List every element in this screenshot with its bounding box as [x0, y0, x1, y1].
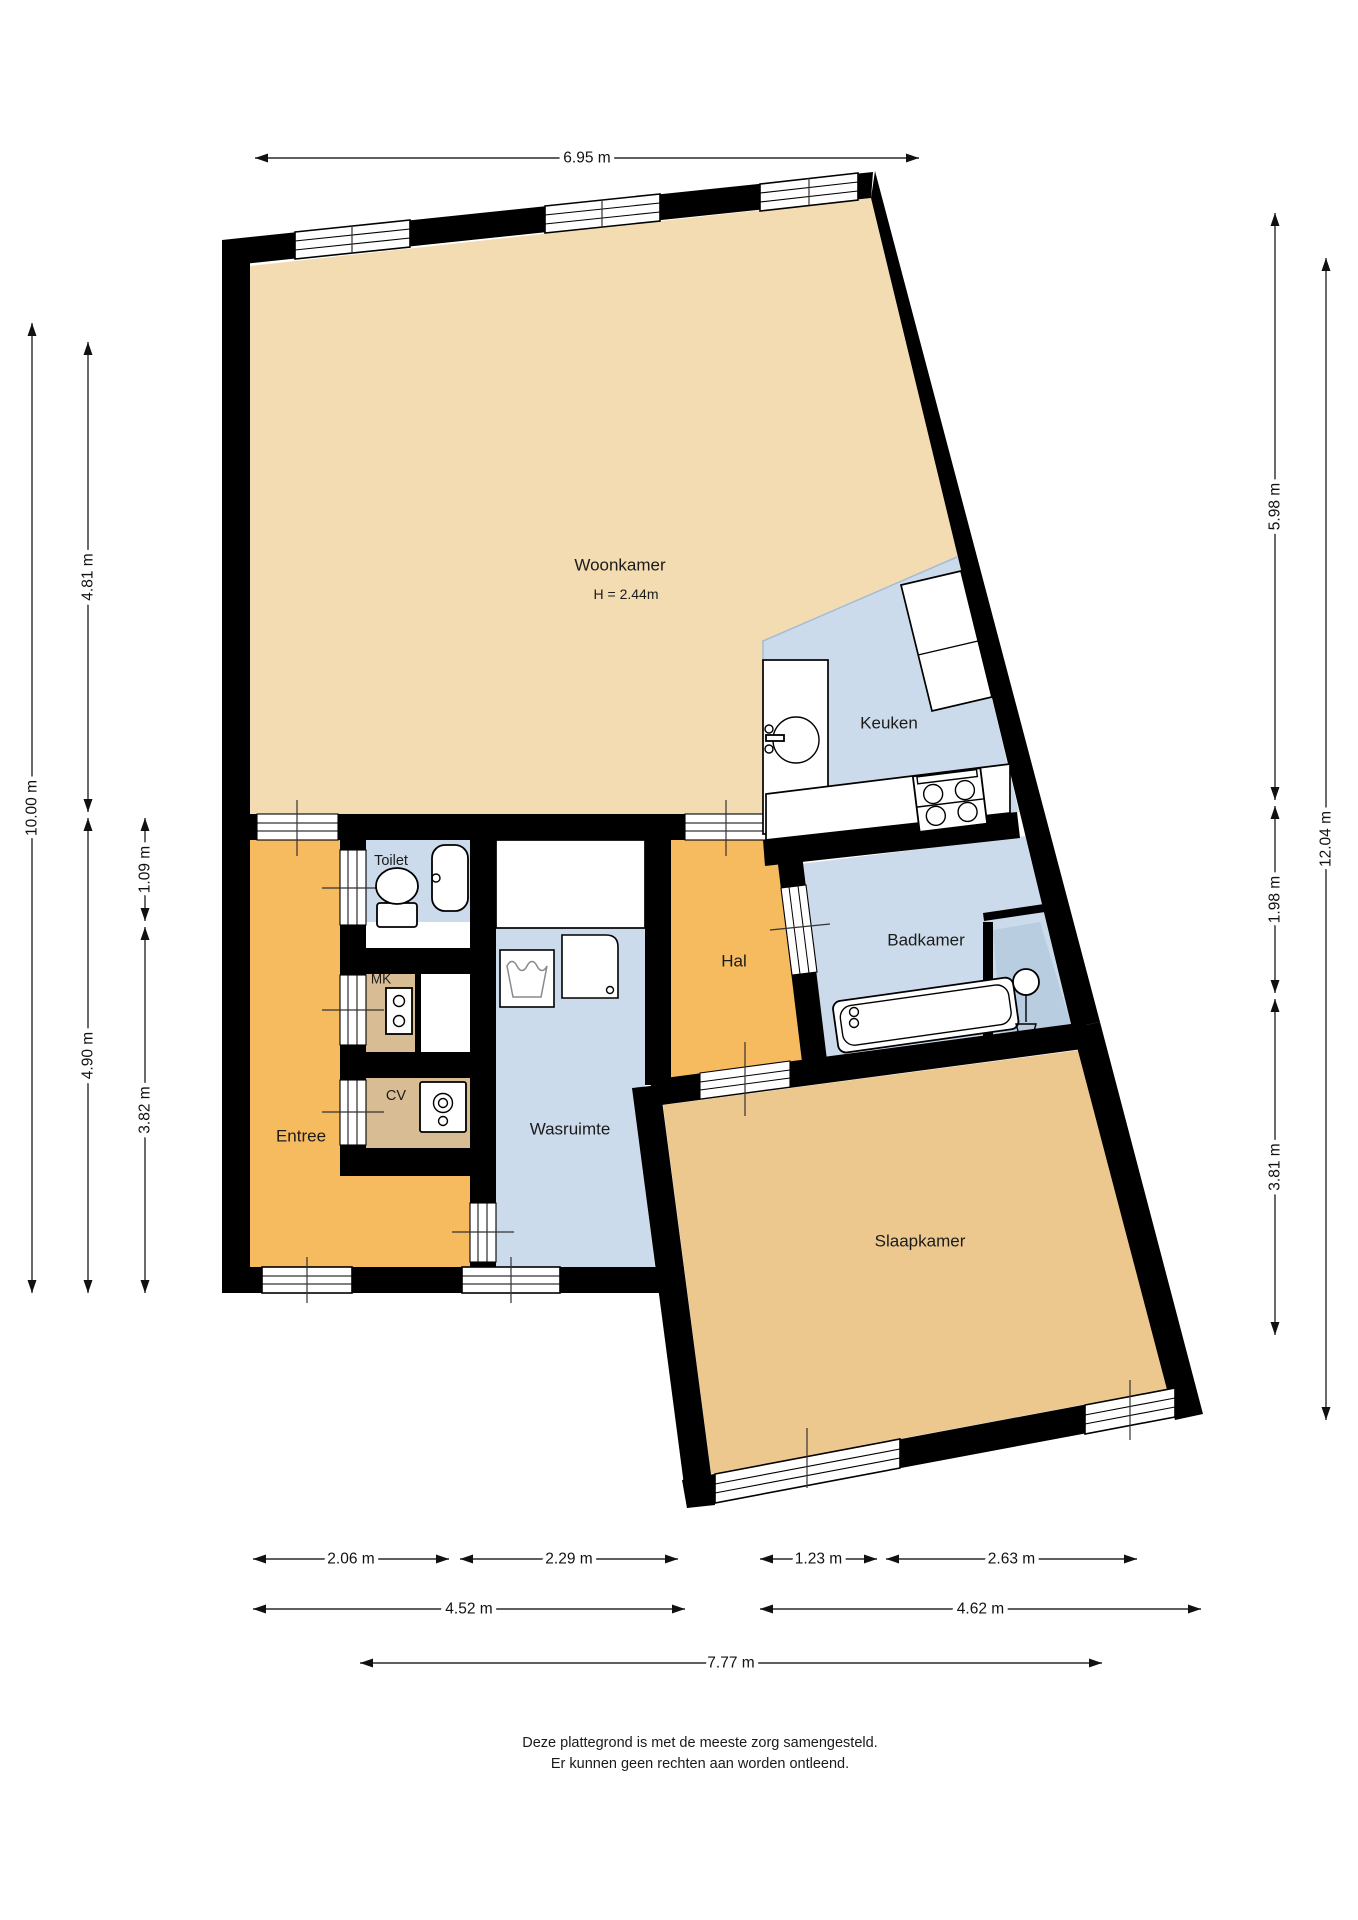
- dimension-mark: [760, 1555, 773, 1564]
- washing-machine-icon: [500, 950, 554, 1007]
- dimension-mark: [864, 1555, 877, 1564]
- dimension-mark: [460, 1555, 473, 1564]
- dimension-left-lower-inner: 3.82 m: [137, 927, 154, 1293]
- dimension-right-upper: 5.98 m: [1267, 213, 1284, 800]
- dimension-mark: [665, 1555, 678, 1564]
- dimension-mark: [28, 323, 37, 336]
- kitchen-faucet-spout: [766, 735, 784, 741]
- floorplan-canvas: Woonkamer H = 2.44m Keuken Toilet MK CV …: [0, 0, 1358, 1920]
- dimension-mark: [1188, 1605, 1201, 1614]
- toilet-tank-icon: [377, 903, 417, 927]
- wall-mk-divider: [415, 974, 421, 1052]
- dimension-mark: [1271, 999, 1280, 1012]
- dimension-mark: [253, 1555, 266, 1564]
- dimension-label: 6.95 m: [563, 150, 610, 167]
- dimension-label: 3.82 m: [137, 1086, 154, 1133]
- label-woonkamer: Woonkamer: [574, 556, 666, 575]
- dimension-mark: [253, 1605, 266, 1614]
- dimension-label: 2.63 m: [988, 1551, 1035, 1568]
- dimension-mark: [1271, 213, 1280, 226]
- dimension-label: 1.98 m: [1267, 876, 1284, 923]
- label-ceiling-height: H = 2.44m: [594, 586, 659, 602]
- dimension-bottom-left-half: 4.52 m: [253, 1601, 685, 1618]
- dimension-mark: [1271, 787, 1280, 800]
- dimension-label: 4.90 m: [80, 1032, 97, 1079]
- dimension-mark: [760, 1605, 773, 1614]
- dimension-mark: [436, 1555, 449, 1564]
- dimension-label: 1.09 m: [137, 846, 154, 893]
- dimension-mark: [141, 818, 150, 831]
- label-cv: CV: [386, 1088, 406, 1104]
- dryer-icon: [562, 935, 618, 998]
- dimension-mark: [141, 927, 150, 940]
- dimension-bottom-wasruimte: 2.29 m: [460, 1551, 678, 1568]
- toilet-sink-icon: [432, 845, 468, 911]
- label-badkamer: Badkamer: [887, 931, 965, 950]
- laundry-counter: [496, 840, 645, 928]
- dimension-label: 4.81 m: [80, 553, 97, 600]
- disclaimer-line-1: Deze plattegrond is met de meeste zorg s…: [522, 1735, 877, 1751]
- label-mk: MK: [371, 972, 391, 987]
- dimension-bottom-entree: 2.06 m: [253, 1551, 449, 1568]
- label-keuken: Keuken: [860, 714, 918, 733]
- label-entree: Entree: [276, 1127, 326, 1146]
- dimension-mark: [1124, 1555, 1137, 1564]
- dimension-bottom-total: 7.77 m: [360, 1655, 1102, 1672]
- dimension-mark: [84, 799, 93, 812]
- dimension-mark: [1322, 258, 1331, 271]
- dimension-right-lower: 3.81 m: [1267, 999, 1284, 1335]
- dimension-left-total: 10.00 m: [24, 323, 41, 1293]
- dimension-label: 1.23 m: [795, 1551, 842, 1568]
- dimension-label: 4.52 m: [445, 1601, 492, 1618]
- dimension-label: 10.00 m: [24, 780, 41, 836]
- dimension-label: 3.81 m: [1267, 1143, 1284, 1190]
- dimension-top-width: 6.95 m: [255, 150, 919, 167]
- dimension-mark: [84, 1280, 93, 1293]
- label-wasruimte: Wasruimte: [530, 1120, 611, 1139]
- dimension-mark: [255, 154, 268, 163]
- dimension-bottom-slaapkamer: 2.63 m: [886, 1551, 1137, 1568]
- label-hal: Hal: [721, 952, 747, 971]
- dimension-mark: [1271, 1322, 1280, 1335]
- dimension-left-toilet-depth: 1.09 m: [137, 818, 154, 921]
- label-slaapkamer: Slaapkamer: [875, 1232, 966, 1251]
- dimension-mark: [1271, 980, 1280, 993]
- dimension-right-middle: 1.98 m: [1267, 806, 1284, 993]
- dimension-left-upper: 4.81 m: [80, 342, 97, 812]
- dimension-label: 5.98 m: [1267, 483, 1284, 530]
- dimension-label: 7.77 m: [707, 1655, 754, 1672]
- wall-wasruimte-right: [645, 838, 671, 1085]
- dimension-mark: [141, 908, 150, 921]
- wall-left: [222, 240, 250, 1293]
- dimension-mark: [1089, 1659, 1102, 1668]
- dimension-bottom-hal: 1.23 m: [760, 1551, 877, 1568]
- dimension-mark: [84, 342, 93, 355]
- label-toilet: Toilet: [374, 853, 408, 869]
- dimension-mark: [672, 1605, 685, 1614]
- dimension-mark: [906, 154, 919, 163]
- disclaimer-line-2: Er kunnen geen rechten aan worden ontlee…: [551, 1756, 849, 1772]
- dimension-bottom-right-half: 4.62 m: [760, 1601, 1201, 1618]
- dimension-mark: [84, 818, 93, 831]
- disclaimer: Deze plattegrond is met de meeste zorg s…: [522, 1735, 877, 1772]
- toilet-bowl-icon: [376, 868, 418, 904]
- dimension-label: 2.29 m: [545, 1551, 592, 1568]
- utility-shaft: [421, 974, 470, 1052]
- dimension-mark: [1322, 1407, 1331, 1420]
- dimension-mark: [360, 1659, 373, 1668]
- dimension-label: 4.62 m: [957, 1601, 1004, 1618]
- dimension-label: 12.04 m: [1318, 811, 1335, 867]
- dimension-label: 2.06 m: [327, 1551, 374, 1568]
- dimension-right-total: 12.04 m: [1318, 258, 1335, 1420]
- dimension-mark: [1271, 806, 1280, 819]
- dimension-left-lower: 4.90 m: [80, 818, 97, 1293]
- dimension-mark: [886, 1555, 899, 1564]
- dimension-mark: [28, 1280, 37, 1293]
- stove-icon: [913, 768, 987, 832]
- floorplan-page: Woonkamer H = 2.44m Keuken Toilet MK CV …: [0, 0, 1358, 1920]
- dimension-mark: [141, 1280, 150, 1293]
